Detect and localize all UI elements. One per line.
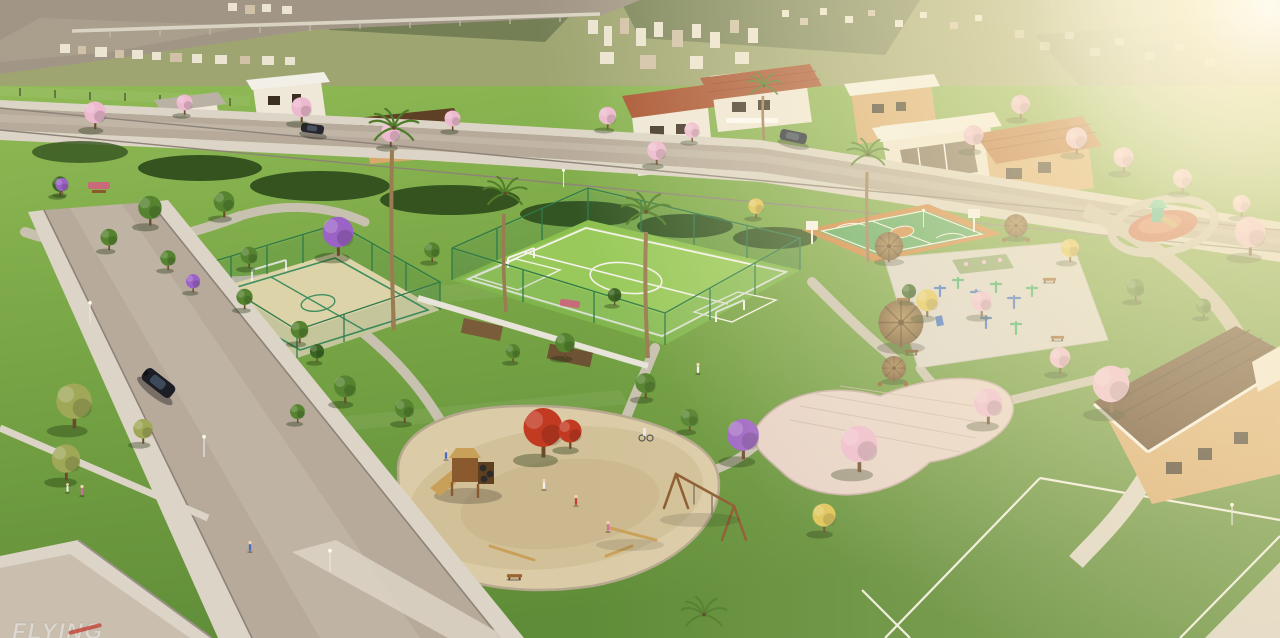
aerial-render: FLYING xyxy=(0,0,1280,638)
warm-wash xyxy=(0,0,1280,638)
studio-watermark: FLYING xyxy=(12,618,104,638)
render-canvas xyxy=(0,0,1280,638)
